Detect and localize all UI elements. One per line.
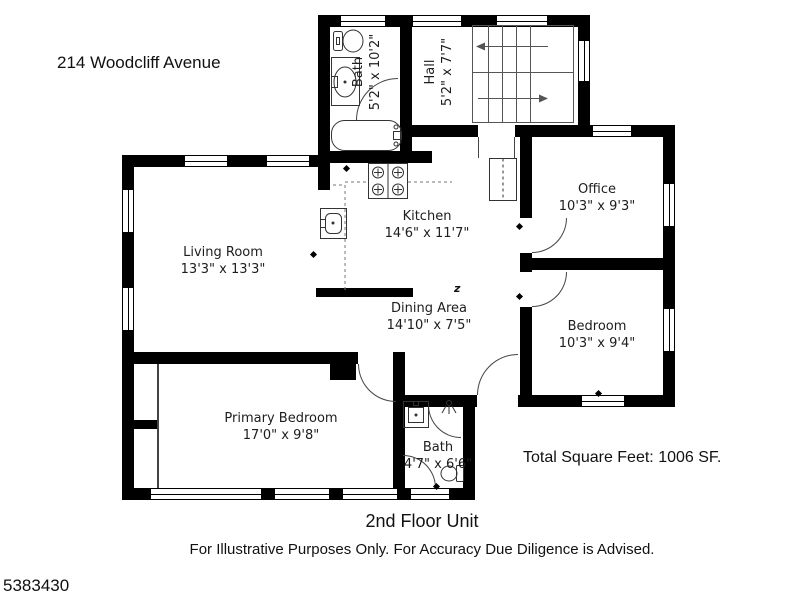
room-name: Bath [404, 440, 472, 457]
room-name: Bedroom [559, 319, 635, 336]
room-dims: 14'10" x 7'5" [387, 318, 472, 335]
fridge-icon [490, 159, 517, 201]
room-label-living-room: Living Room 13'3" x 13'3" [181, 245, 266, 279]
room-label-dining-area: Dining Area 14'10" x 7'5" [387, 301, 472, 335]
room-dims: 10'3" x 9'3" [559, 199, 635, 216]
address-title: 214 Woodcliff Avenue [57, 53, 221, 73]
room-name: Primary Bedroom [224, 411, 337, 428]
room-dims: 5'2" x 10'2" [368, 34, 385, 110]
total-square-feet: Total Square Feet: 1006 SF. [523, 449, 721, 467]
room-name: Living Room [181, 245, 266, 262]
room-dims: 10'3" x 9'4" [559, 336, 635, 353]
room-label-bedroom: Bedroom 10'3" x 9'4" [559, 319, 635, 353]
room-dims: 17'0" x 9'8" [224, 428, 337, 445]
room-label-hall: Hall 5'2" x 7'7" [423, 38, 457, 106]
vanity-sink-icon [404, 402, 429, 428]
stairs-icon [472, 25, 574, 123]
room-dims: 5'2" x 7'7" [440, 38, 457, 106]
shower-head-icon [442, 401, 456, 415]
room-dims: 13'3" x 13'3" [181, 262, 266, 279]
room-name: Kitchen [385, 209, 470, 226]
room-label-office: Office 10'3" x 9'3" [559, 182, 635, 216]
room-label-primary-bedroom: Primary Bedroom 17'0" x 9'8" [224, 411, 337, 445]
room-dims: 4'7" x 6'6" [404, 457, 472, 474]
room-label-kitchen: Kitchen 14'6" x 11'7" [385, 209, 470, 243]
floor-plan: z Bath 5'2" x 10'2" Hall 5'2" x 7'7" Off… [0, 0, 800, 600]
room-name: Hall [423, 38, 440, 106]
ceiling-fan-symbol: z [453, 282, 461, 295]
floor-label: 2nd Floor Unit [22, 511, 800, 532]
room-name: Dining Area [387, 301, 472, 318]
stove-icon [369, 164, 408, 199]
fixtures-layer: z [0, 0, 800, 600]
room-dims: 14'6" x 11'7" [385, 226, 470, 243]
listing-id: 5383430 [3, 576, 69, 596]
room-label-bath-lower: Bath 4'7" x 6'6" [404, 440, 472, 474]
kitchen-sink-icon [321, 209, 347, 239]
bathtub-icon [332, 121, 402, 151]
room-label-bath-upper: Bath 5'2" x 10'2" [351, 34, 385, 110]
disclaimer-text: For Illustrative Purposes Only. For Accu… [22, 541, 800, 558]
room-name: Bath [351, 34, 368, 110]
room-name: Office [559, 182, 635, 199]
